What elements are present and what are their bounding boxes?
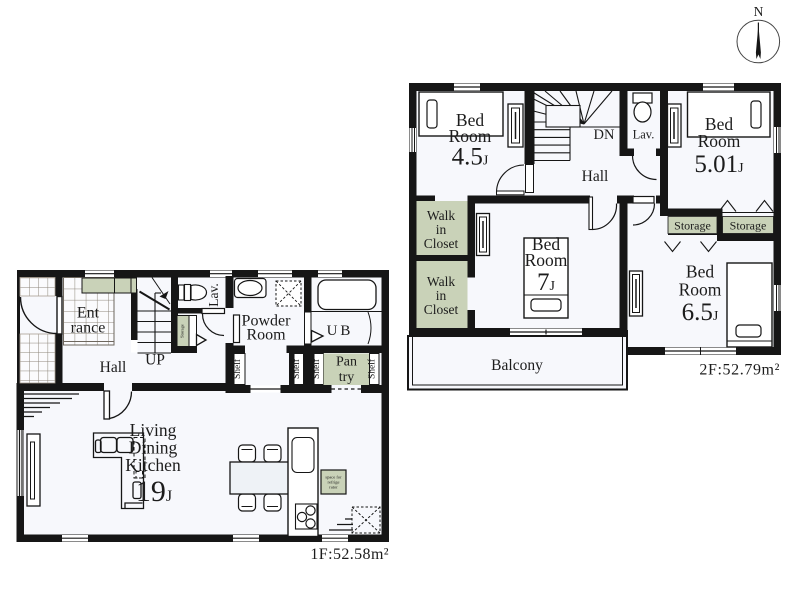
svg-text:Lav.: Lav. — [633, 128, 655, 142]
svg-text:Closet: Closet — [424, 236, 459, 251]
svg-text:Balcony: Balcony — [491, 357, 543, 374]
svg-text:Room: Room — [525, 250, 568, 270]
svg-text:Room: Room — [679, 280, 722, 300]
svg-text:N: N — [754, 4, 764, 19]
svg-text:Shelf: Shelf — [311, 358, 322, 379]
svg-text:5.01J: 5.01J — [694, 151, 744, 178]
svg-text:Storage: Storage — [730, 219, 767, 233]
svg-text:Room: Room — [698, 131, 741, 151]
svg-text:Hall: Hall — [582, 168, 609, 185]
svg-text:rator: rator — [329, 485, 338, 490]
svg-text:Pan: Pan — [336, 355, 357, 370]
svg-text:Closet: Closet — [424, 302, 459, 317]
svg-text:Kitchen: Kitchen — [125, 455, 181, 475]
svg-text:Shelf: Shelf — [232, 358, 243, 379]
svg-text:in: in — [436, 288, 447, 303]
svg-text:try: try — [339, 370, 355, 385]
svg-text:Lav.: Lav. — [206, 283, 221, 307]
svg-text:Bed: Bed — [686, 262, 714, 282]
svg-text:Room: Room — [246, 327, 286, 344]
svg-text:DN: DN — [594, 127, 615, 143]
svg-text:Storage: Storage — [180, 324, 185, 338]
svg-text:rance: rance — [71, 320, 106, 337]
svg-text:Walk: Walk — [427, 274, 455, 289]
svg-text:Shelf: Shelf — [367, 358, 378, 379]
svg-text:UB: UB — [327, 323, 354, 339]
svg-text:Storage: Storage — [674, 219, 711, 233]
svg-text:Walk: Walk — [427, 208, 455, 223]
svg-text:1F:52.58m²: 1F:52.58m² — [310, 546, 389, 563]
svg-text:2F:52.79m²: 2F:52.79m² — [699, 362, 780, 379]
svg-text:in: in — [436, 222, 447, 237]
svg-text:Shelf: Shelf — [291, 358, 302, 379]
svg-text:Hall: Hall — [100, 359, 127, 376]
svg-text:UP: UP — [145, 352, 165, 369]
